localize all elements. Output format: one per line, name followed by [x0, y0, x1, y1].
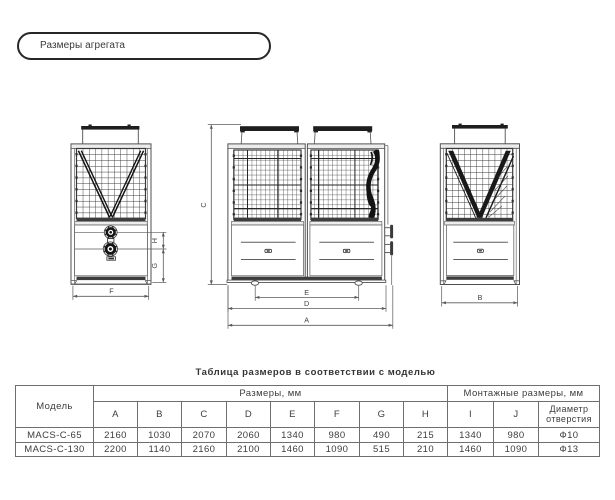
svg-text:F: F [109, 286, 114, 295]
svg-text:E: E [304, 288, 309, 297]
svg-text:G: G [150, 262, 159, 268]
svg-text:A: A [304, 315, 309, 324]
svg-text:C: C [199, 202, 208, 207]
svg-text:D: D [304, 299, 309, 308]
svg-text:B: B [478, 293, 483, 302]
svg-text:H: H [150, 238, 159, 243]
